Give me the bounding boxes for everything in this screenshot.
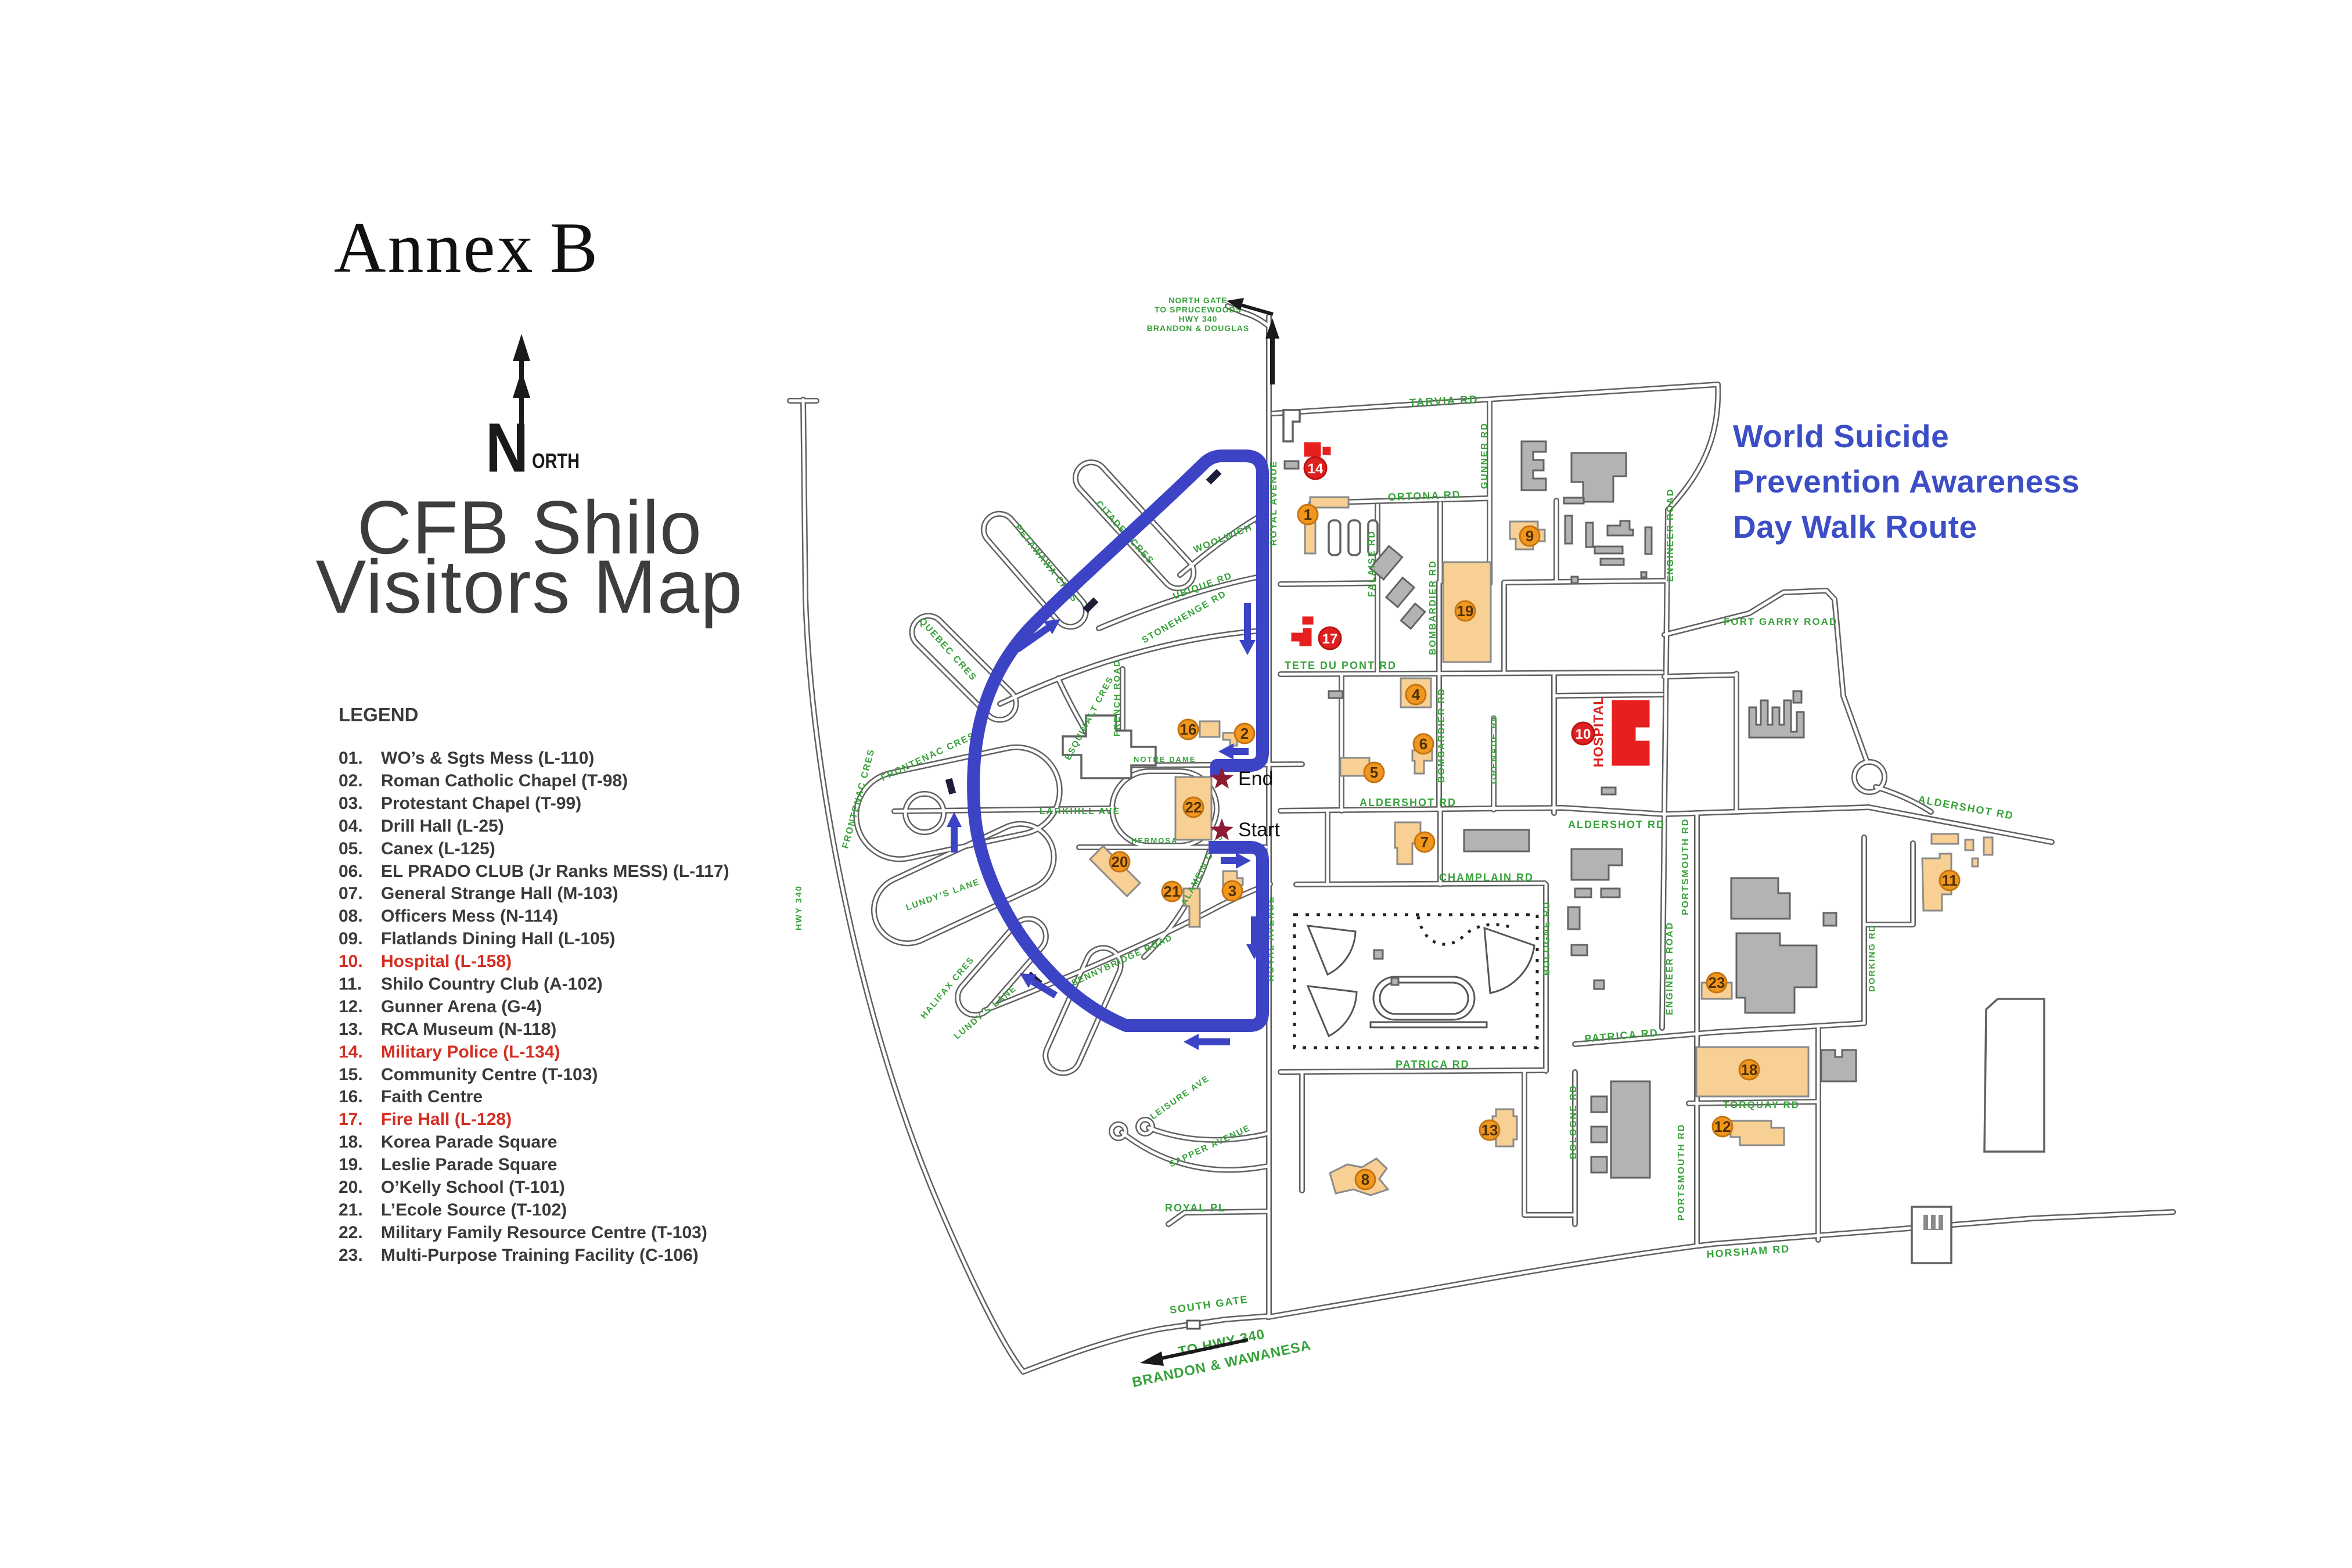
svg-text:LARKHILL AVE: LARKHILL AVE: [1040, 807, 1120, 817]
svg-text:17: 17: [1322, 631, 1338, 647]
svg-text:Visitors Map: Visitors Map: [316, 544, 744, 629]
svg-text:BOLOGNE RD: BOLOGNE RD: [1542, 901, 1552, 976]
svg-text:ENGINEER ROAD: ENGINEER ROAD: [1665, 922, 1675, 1015]
svg-text:NORTH GATE: NORTH GATE: [1168, 296, 1228, 305]
svg-text:CHAMPLAIN RD: CHAMPLAIN RD: [1439, 872, 1534, 883]
svg-text:TORQUAY RD: TORQUAY RD: [1723, 1099, 1800, 1110]
svg-text:BRANDON & DOUGLAS: BRANDON & DOUGLAS: [1147, 323, 1249, 333]
svg-text:World Suicide: World Suicide: [1733, 418, 1949, 454]
svg-text:Start: Start: [1238, 819, 1280, 841]
svg-text:ENGINEER ROAD: ENGINEER ROAD: [1666, 488, 1675, 582]
svg-text:FALAISE RD: FALAISE RD: [1367, 530, 1377, 597]
svg-text:02.Roman Catholic Chapel (T-98: 02.Roman Catholic Chapel (T-98): [339, 771, 628, 790]
svg-text:07.General Strange Hall (M-103: 07.General Strange Hall (M-103): [339, 884, 618, 903]
svg-text:FORT GARRY ROAD: FORT GARRY ROAD: [1724, 616, 1837, 627]
svg-text:PORTSMOUTH RD: PORTSMOUTH RD: [1677, 1124, 1686, 1221]
svg-text:PORTSMOUTH RD: PORTSMOUTH RD: [1681, 818, 1691, 915]
svg-text:05.Canex (L-125): 05.Canex (L-125): [339, 839, 495, 858]
svg-text:FRENCH ROAD: FRENCH ROAD: [1112, 659, 1122, 736]
svg-text:4: 4: [1412, 686, 1420, 703]
svg-text:HWY 340: HWY 340: [794, 885, 804, 930]
svg-text:22.Military Family Resource Ce: 22.Military Family Resource Centre (T-10…: [339, 1223, 707, 1242]
svg-text:N: N: [485, 409, 528, 487]
svg-text:Prevention Awareness: Prevention Awareness: [1733, 463, 2080, 499]
svg-text:5: 5: [1370, 764, 1378, 781]
svg-text:GUNNER RD: GUNNER RD: [1480, 422, 1490, 489]
svg-text:21: 21: [1164, 883, 1181, 900]
svg-text:TO SPRUCEWOODS: TO SPRUCEWOODS: [1155, 305, 1242, 314]
svg-text:DORKING RD: DORKING RD: [1867, 924, 1877, 992]
svg-text:HERMOSA: HERMOSA: [1131, 836, 1178, 845]
svg-text:ORTH: ORTH: [532, 449, 580, 473]
svg-text:7: 7: [1420, 833, 1429, 851]
svg-text:2: 2: [1240, 725, 1249, 742]
svg-text:3: 3: [1228, 882, 1236, 900]
svg-text:13: 13: [1481, 1121, 1498, 1139]
svg-text:HWY 340: HWY 340: [1179, 314, 1218, 323]
svg-text:8: 8: [1361, 1171, 1369, 1188]
svg-text:9: 9: [1526, 527, 1534, 545]
svg-text:BOMBARDIER RD: BOMBARDIER RD: [1428, 560, 1438, 655]
svg-text:TETE DU PONT RD: TETE DU PONT RD: [1285, 660, 1397, 671]
svg-text:10: 10: [1576, 727, 1591, 742]
svg-text:23: 23: [1709, 974, 1725, 991]
svg-text:BOLOGNE RD: BOLOGNE RD: [1569, 1085, 1578, 1159]
svg-text:11: 11: [1941, 872, 1958, 889]
svg-text:LEGEND: LEGEND: [339, 704, 419, 725]
svg-text:18: 18: [1741, 1061, 1758, 1078]
svg-text:PATRICA RD: PATRICA RD: [1396, 1059, 1470, 1070]
svg-text:20: 20: [1112, 853, 1128, 871]
svg-text:Day Walk Route: Day Walk Route: [1733, 509, 1977, 545]
svg-text:GRENADE RD: GRENADE RD: [1489, 714, 1499, 784]
svg-text:19: 19: [1457, 602, 1474, 620]
svg-text:16.Faith Centre: 16.Faith Centre: [339, 1087, 483, 1106]
svg-text:AnnexB: AnnexB: [334, 208, 599, 287]
svg-text:ALDERSHOT RD: ALDERSHOT RD: [1568, 819, 1665, 830]
svg-text:22: 22: [1185, 799, 1202, 816]
svg-text:16: 16: [1180, 721, 1197, 738]
svg-text:NOTRE DAME: NOTRE DAME: [1134, 755, 1196, 764]
svg-text:BOMBARDIER RD: BOMBARDIER RD: [1437, 688, 1447, 783]
svg-text:6: 6: [1419, 735, 1427, 753]
svg-text:ROYAL PL: ROYAL PL: [1165, 1202, 1226, 1214]
svg-text:1: 1: [1304, 506, 1312, 523]
svg-text:12: 12: [1714, 1118, 1731, 1135]
svg-text:ALDERSHOT RD: ALDERSHOT RD: [1360, 797, 1456, 808]
svg-text:06.EL PRADO CLUB (Jr Ranks MES: 06.EL PRADO CLUB (Jr Ranks MESS) (L-117): [339, 862, 729, 881]
svg-text:End: End: [1238, 768, 1274, 790]
svg-text:ROYAL AVENUE: ROYAL AVENUE: [1269, 460, 1279, 546]
svg-text:14: 14: [1308, 461, 1324, 477]
svg-text:23.Multi-Purpose Training Faci: 23.Multi-Purpose Training Facility (C-10…: [339, 1246, 699, 1265]
